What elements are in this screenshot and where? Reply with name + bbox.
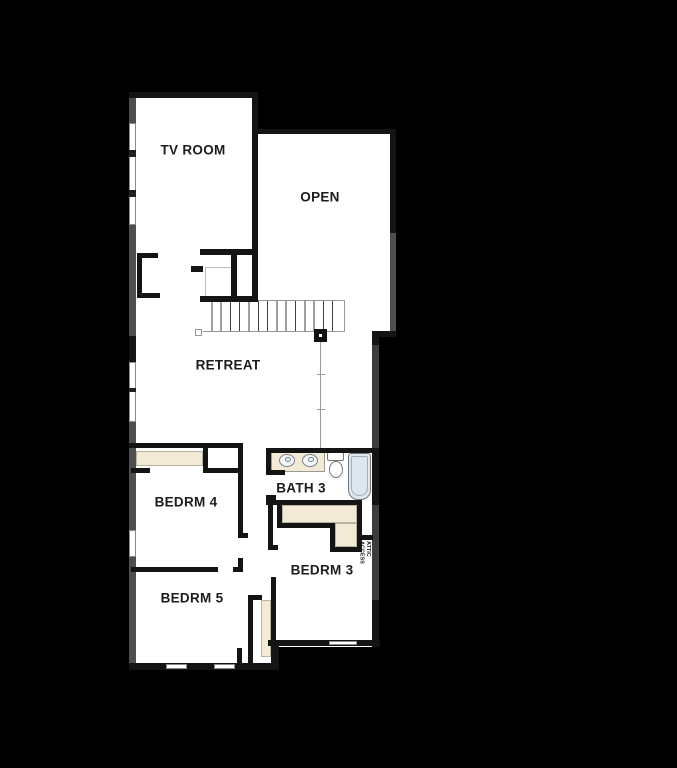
stair-head-wall <box>200 296 258 302</box>
tv-door-frame-bar <box>137 253 142 298</box>
landing-closet-inner-wall <box>231 255 237 300</box>
bedroom5-bottom-wall <box>129 663 279 670</box>
bath3-toilet-tank <box>327 452 344 461</box>
bedroom5-right-wall-stub <box>248 595 262 600</box>
open-area-top-wall <box>252 129 396 134</box>
bedroom4-door-jamb <box>238 533 248 538</box>
bedroom4-closet-bottom-left <box>131 468 150 473</box>
floor-plan-canvas: TV ROOM OPEN RETREAT BEDRM 4 BATH 3 BEDR… <box>0 0 677 768</box>
open-right-wall-upper <box>390 129 396 233</box>
newel-dot <box>319 334 322 337</box>
bath3-toilet-bowl <box>329 461 343 478</box>
right-wall-black-seg-bath <box>372 448 379 505</box>
tv-room-top-wall <box>129 92 258 98</box>
bath3-bathtub <box>348 453 371 500</box>
bedroom5-door-return <box>233 567 243 572</box>
understair-outline <box>205 267 233 298</box>
stair-start-marker <box>195 329 202 336</box>
bath3-top-wall <box>266 448 373 453</box>
attic-access-stub-wall <box>357 535 373 540</box>
bedroom4-window <box>129 530 136 557</box>
tv-room-window-mullion-2 <box>129 190 136 197</box>
bedroom3-left-wall-upper <box>268 505 273 550</box>
tv-room-label: TV ROOM <box>160 143 225 158</box>
retreat-window-mullion <box>129 388 136 392</box>
bedroom4-top-wall <box>129 443 243 448</box>
bedroom3-bottom-window <box>329 641 357 645</box>
bath3-sink-left <box>279 454 295 467</box>
stair-railing-line <box>320 342 321 448</box>
landing-wall-stub <box>191 266 203 272</box>
bedroom3-closet-shelf-leg <box>335 523 357 547</box>
tv-door-jamb-top <box>137 253 158 258</box>
bedroom3-bottom-wall <box>268 640 380 646</box>
bedroom4-bedroom5-divider <box>131 567 218 572</box>
railing-tick-2 <box>317 409 325 410</box>
tv-room-window-mullion-1 <box>129 150 136 157</box>
vanity-end-stub <box>266 470 285 475</box>
bedroom5-window-left <box>166 664 187 669</box>
bath3-label: BATH 3 <box>276 481 326 496</box>
bedroom4-label: BEDRM 4 <box>155 495 218 510</box>
retreat-window <box>129 362 136 422</box>
staircase-treads <box>203 300 336 332</box>
tv-open-divider-wall <box>252 97 258 300</box>
bedroom3-closet-bottom-wall <box>277 523 330 528</box>
exterior-wall-right-open <box>390 233 396 332</box>
tv-room-floor <box>136 97 252 257</box>
exterior-wall-left-dark-seg <box>129 336 136 362</box>
staircase-end <box>336 300 345 332</box>
tv-door-jamb-bottom <box>137 293 160 298</box>
bath3-sink-right <box>302 454 318 467</box>
retreat-label: RETREAT <box>196 358 261 373</box>
bedroom3-left-wall-lower <box>271 577 276 640</box>
bedroom5-window-right <box>214 664 235 669</box>
bedroom3-label: BEDRM 3 <box>291 563 354 578</box>
bedroom5-label: BEDRM 5 <box>161 591 224 606</box>
bedroom5-right-wall <box>248 595 253 663</box>
bedroom4-right-wall-upper <box>238 448 243 533</box>
landing-closet-top-wall <box>200 249 252 255</box>
open-label: OPEN <box>300 190 339 205</box>
open-step-wall <box>372 331 396 337</box>
tv-room-window <box>129 123 136 225</box>
attic-access-label: ATTIC ACCESS <box>357 541 371 577</box>
bedroom4-closet-shelf <box>136 451 203 466</box>
bedroom5-wall-stub <box>237 648 242 663</box>
bedroom4-closet-bottom-right <box>203 468 243 473</box>
bedroom3-closet-shelf <box>282 505 357 523</box>
bedroom5-closet-shelf <box>261 600 271 657</box>
bedroom3-closet-leg-bottom-wall <box>330 547 357 552</box>
bedroom3-door-jamb <box>268 545 278 550</box>
bathtub-inner-line <box>351 456 368 496</box>
stair-newel-post <box>314 329 327 342</box>
railing-tick-1 <box>317 374 325 375</box>
